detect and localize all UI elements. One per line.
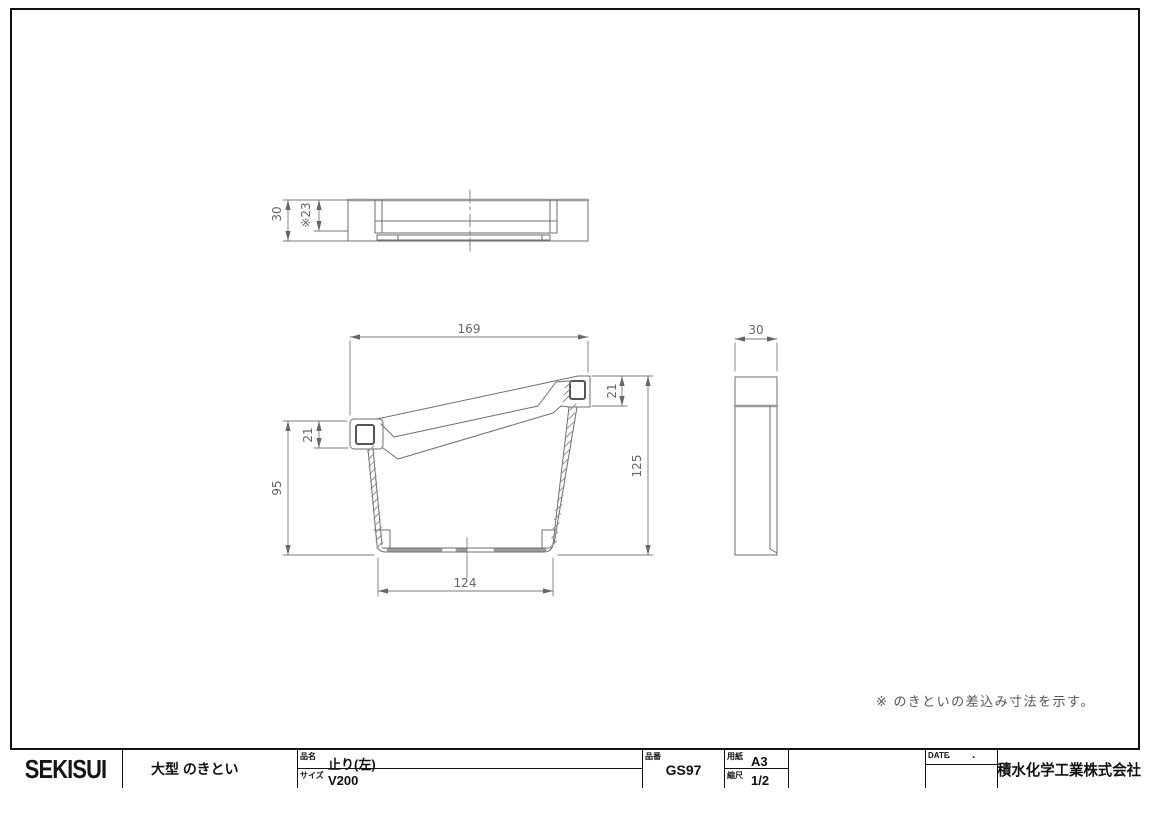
scale-label: 縮尺 — [727, 770, 743, 781]
logo-cell: SEKISUI — [10, 750, 122, 788]
paper-label: 用紙 — [727, 751, 743, 762]
dim-front-right-ear: 21 — [605, 383, 619, 398]
dim-top-view-insert: ※23 — [299, 202, 313, 227]
part-number-label: 品番 — [645, 751, 661, 762]
top-view — [348, 190, 588, 252]
side-view — [735, 377, 777, 555]
title-block: SEKISUI 大型 のきとい 品名 止り(左) サイズ V200 品番 GS9… — [10, 748, 1140, 788]
product-category-cell: 大型 のきとい — [122, 750, 297, 788]
dim-top-view-depth: 30 — [270, 206, 284, 221]
spare-cell — [788, 750, 925, 788]
dim-front-left-ear: 21 — [301, 427, 315, 442]
dim-side-view-width: 30 — [748, 323, 763, 337]
product-category: 大型 のきとい — [123, 759, 238, 779]
paper-value: A3 — [751, 754, 768, 769]
part-number-cell: 品番 GS97 — [642, 750, 724, 788]
product-name-label: 品名 — [300, 751, 316, 762]
company-cell: 積水化学工業株式会社 — [997, 750, 1140, 788]
company-name: 積水化学工業株式会社 — [997, 759, 1141, 780]
drawing-sheet: 30 ※23 — [0, 0, 1161, 822]
sekisui-logo: SEKISUI — [25, 754, 107, 785]
front-view — [350, 376, 590, 578]
date-value: · · — [926, 752, 997, 764]
right-insert-hole — [570, 381, 585, 399]
dim-front-left-height: 95 — [270, 480, 284, 495]
dim-front-bottom-width: 124 — [454, 576, 477, 590]
side-view-dimensions: 30 — [735, 323, 777, 371]
dim-front-right-height: 125 — [630, 455, 644, 478]
scale-value: 1/2 — [751, 773, 769, 788]
dim-front-top-width: 169 — [458, 322, 481, 336]
scale-row: 縮尺 1/2 — [725, 769, 788, 788]
name-size-cell: 品名 止り(左) サイズ V200 — [297, 750, 642, 788]
date-row: DATE · · — [926, 750, 997, 765]
size-row: サイズ V200 — [298, 769, 642, 788]
insertion-note: ※ のきといの差込み寸法を示す。 — [876, 691, 1095, 710]
front-view-dimensions: 169 124 95 21 21 125 — [270, 322, 653, 596]
top-view-dimensions: 30 ※23 — [270, 200, 348, 241]
part-number-value: GS97 — [643, 762, 724, 778]
left-insert-hole — [356, 425, 374, 444]
left-wall-hatch — [368, 446, 383, 548]
paper-scale-cell: 用紙 A3 縮尺 1/2 — [724, 750, 788, 788]
product-name-row: 品名 止り(左) — [298, 750, 642, 769]
size-value: V200 — [328, 773, 358, 788]
date-cell: DATE · · — [925, 750, 997, 788]
size-label: サイズ — [300, 770, 324, 781]
paper-row: 用紙 A3 — [725, 750, 788, 769]
